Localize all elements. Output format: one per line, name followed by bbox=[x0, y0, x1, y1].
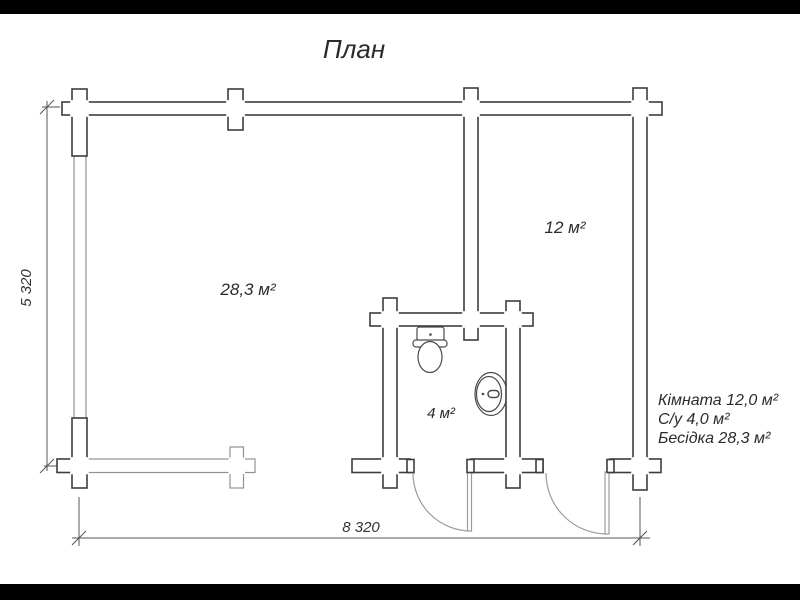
railing-joint-patch bbox=[229, 458, 245, 474]
bathroom-area-label: 4 м² bbox=[427, 405, 456, 422]
door-left bbox=[413, 472, 472, 531]
joint-patch bbox=[381, 311, 399, 328]
post-bottom-left-arm bbox=[57, 459, 72, 473]
floor-plan-canvas: План 28,3 м² 12 м² 4 м² 8 320 5 320 Кімн… bbox=[0, 0, 800, 600]
toilet-button bbox=[429, 333, 432, 336]
door-jamb bbox=[407, 460, 414, 473]
letterbox-top bbox=[0, 0, 800, 14]
dimension-vertical bbox=[40, 100, 62, 473]
joint-patch bbox=[631, 457, 649, 474]
door-jamb bbox=[536, 460, 543, 473]
dimension-label-vertical: 5 320 bbox=[18, 269, 35, 307]
joint-patch bbox=[504, 457, 522, 474]
joint-patch bbox=[226, 100, 245, 117]
wall-right bbox=[633, 88, 647, 490]
joint-patch bbox=[462, 311, 480, 328]
toilet-icon bbox=[413, 327, 447, 373]
door-jamb bbox=[467, 460, 474, 473]
dimension-label-horizontal: 8 320 bbox=[342, 519, 380, 536]
legend-line-room: Кімната 12,0 м² bbox=[658, 392, 779, 409]
joint-patch bbox=[462, 100, 480, 117]
sink-icon bbox=[475, 373, 507, 416]
gazebo-area-label: 28,3 м² bbox=[219, 280, 276, 299]
legend-line-gazebo: Бесідка 28,3 м² bbox=[658, 430, 771, 447]
post-bottom-left bbox=[72, 418, 87, 488]
joint-patch bbox=[631, 100, 649, 117]
door-leaf bbox=[468, 472, 472, 531]
door-leaf bbox=[605, 472, 609, 534]
door-swing-arc bbox=[413, 473, 471, 531]
sink-faucet bbox=[488, 391, 499, 398]
floor-plan-image: План 28,3 м² 12 м² 4 м² 8 320 5 320 Кімн… bbox=[0, 0, 800, 600]
wall-middle-vertical bbox=[464, 88, 478, 340]
wall-bottom-segment-1 bbox=[352, 459, 410, 473]
joint-patch bbox=[504, 311, 522, 328]
toilet-bowl bbox=[418, 342, 442, 373]
wall-joint-patches bbox=[70, 100, 649, 474]
door-swing-arc bbox=[546, 473, 607, 534]
walls bbox=[57, 88, 662, 490]
legend: Кімната 12,0 м² С/у 4,0 м² Бесідка 28,3 … bbox=[658, 392, 779, 447]
gazebo-railing bbox=[74, 154, 255, 488]
post-top-left bbox=[72, 89, 87, 156]
sink-drain bbox=[482, 393, 485, 396]
railing-left bbox=[74, 154, 86, 422]
wall-top bbox=[62, 102, 662, 115]
room-area-label: 12 м² bbox=[545, 218, 587, 237]
joint-patch bbox=[70, 100, 89, 117]
door-jamb bbox=[607, 460, 614, 473]
legend-line-bathroom: С/у 4,0 м² bbox=[658, 411, 730, 428]
plan-title: План bbox=[323, 34, 385, 64]
door-right bbox=[546, 472, 609, 534]
joint-patch bbox=[381, 457, 399, 474]
letterbox-bottom bbox=[0, 584, 800, 600]
joint-patch bbox=[70, 457, 89, 474]
